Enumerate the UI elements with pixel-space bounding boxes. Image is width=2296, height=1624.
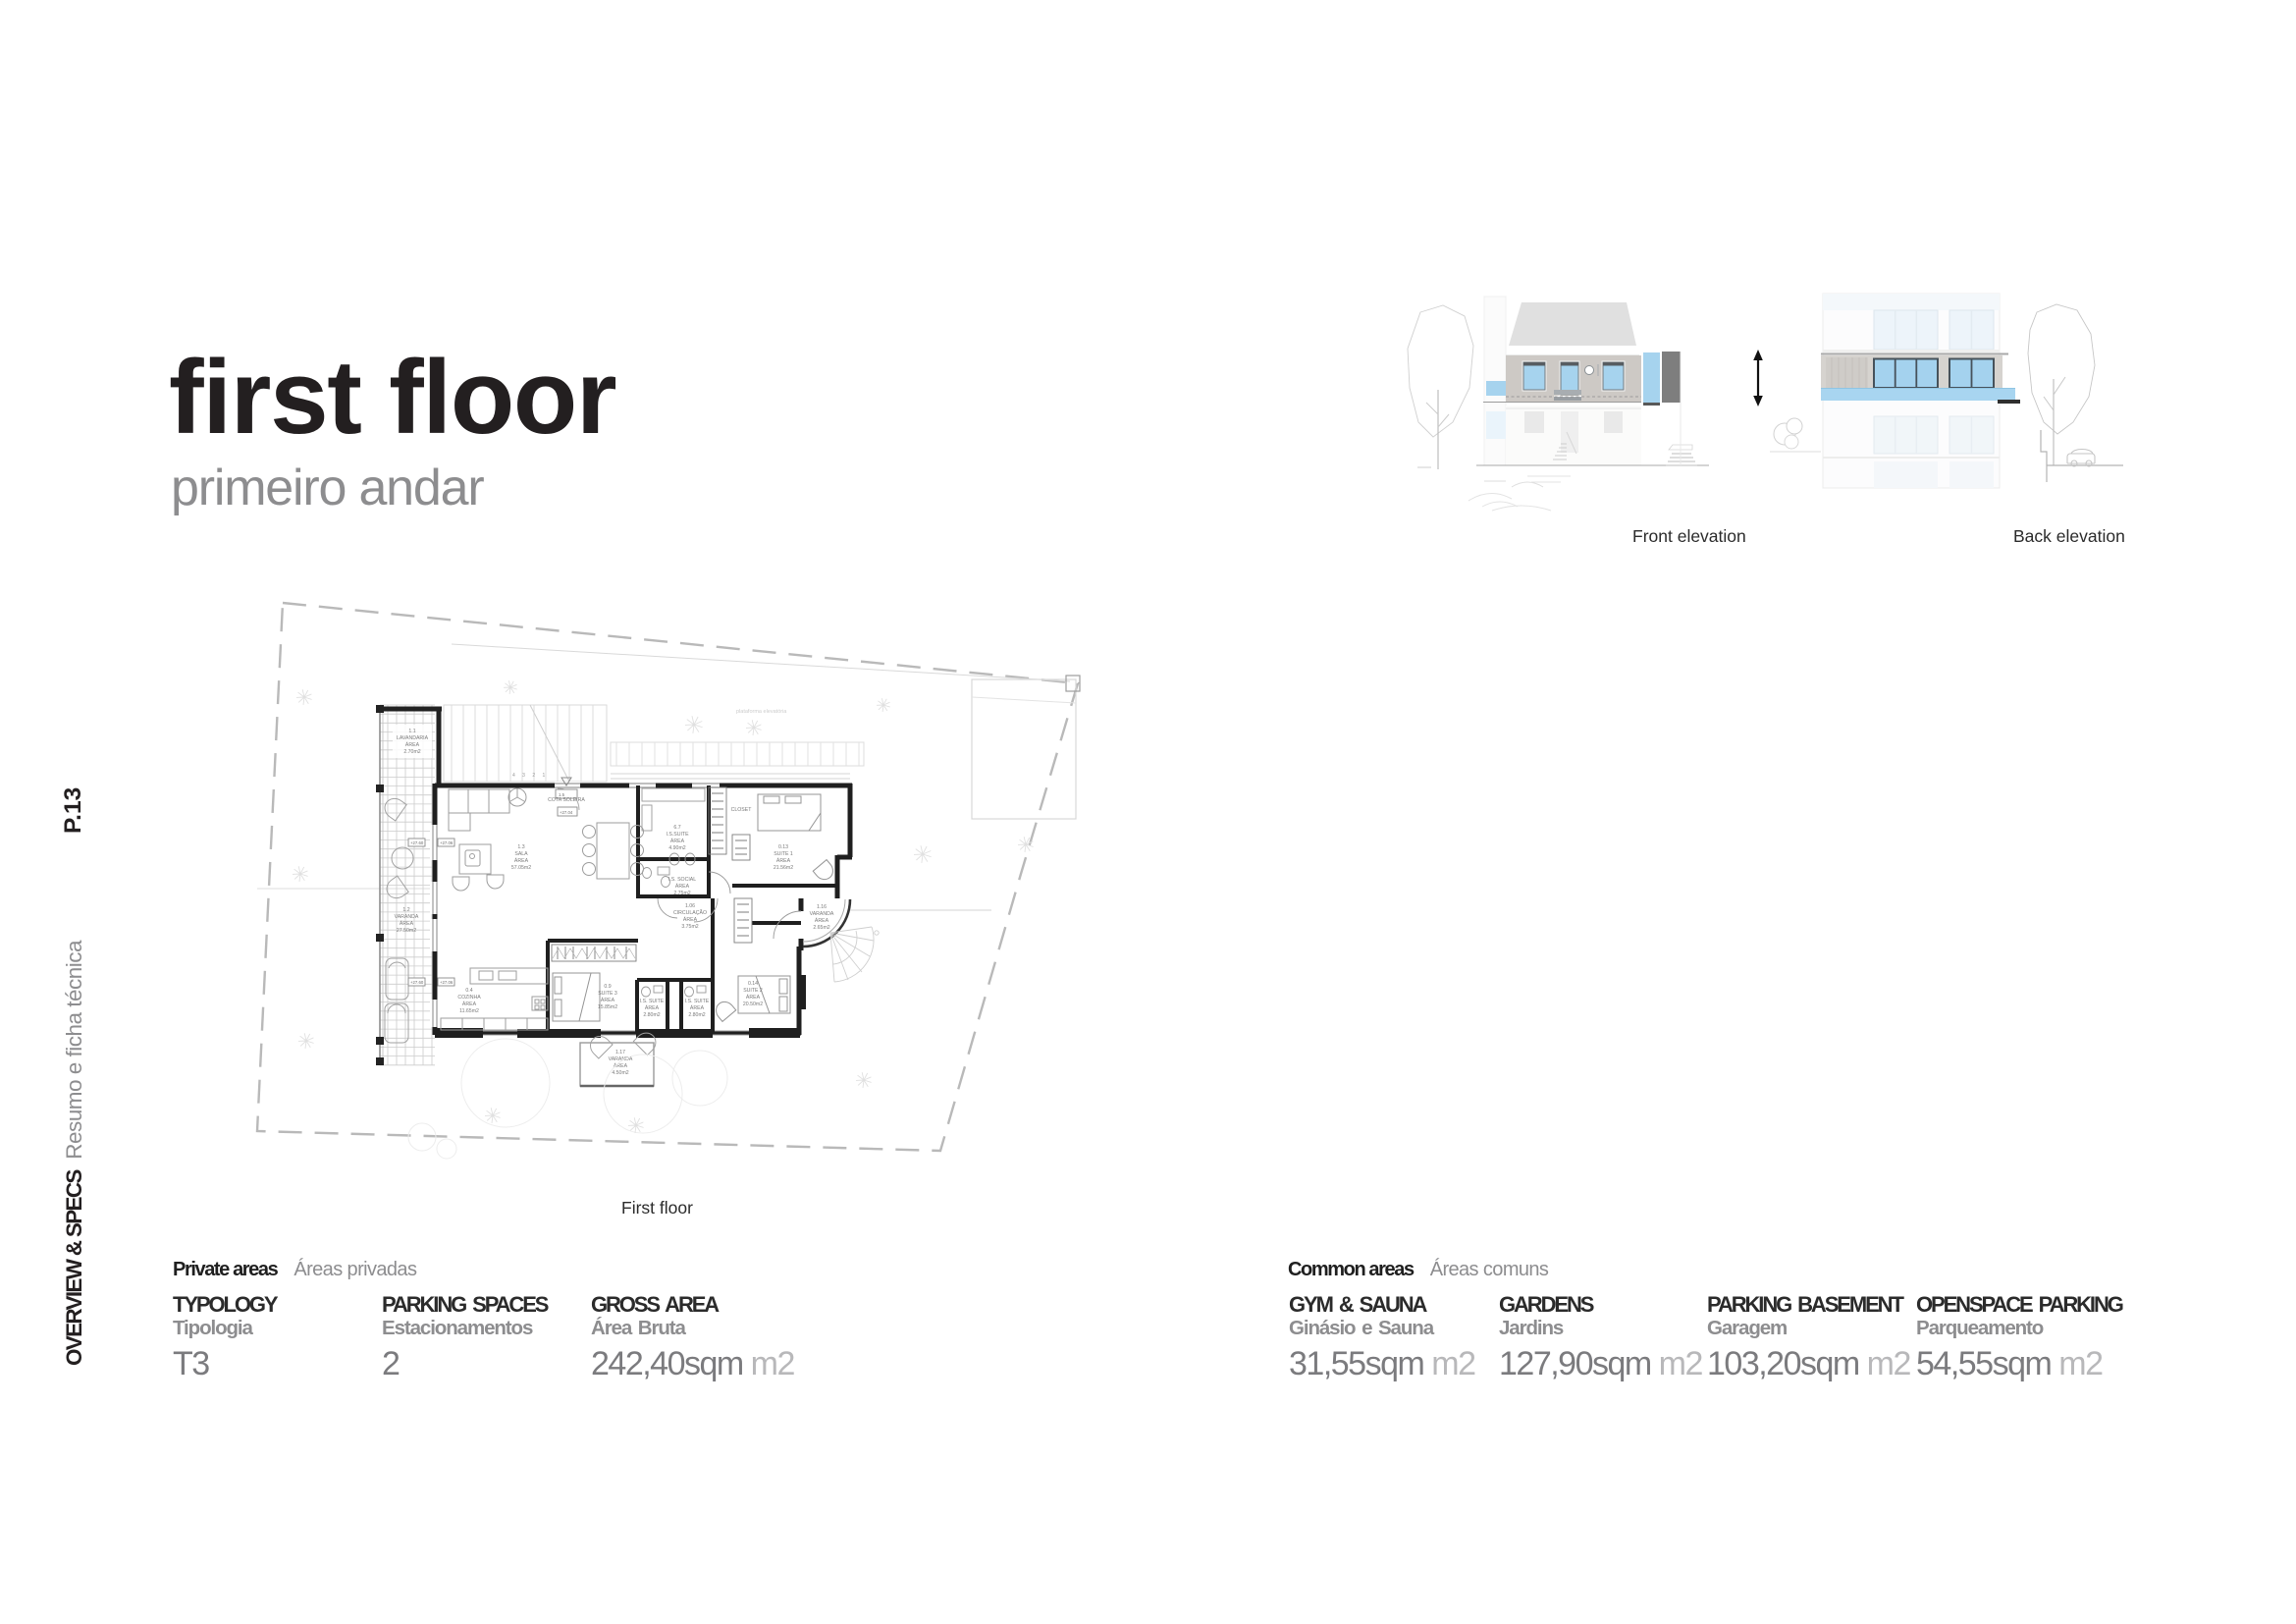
svg-text:ÁREA: ÁREA — [683, 916, 698, 923]
svg-text:SUITE 1: SUITE 1 — [774, 851, 793, 857]
svg-text:3.75m2: 3.75m2 — [681, 924, 698, 930]
svg-text:ÁREA: ÁREA — [690, 1004, 705, 1011]
svg-text:21.56m2: 21.56m2 — [774, 865, 793, 871]
svg-text:1.16: 1.16 — [817, 904, 827, 910]
svg-text:1.06: 1.06 — [685, 903, 695, 909]
svg-text:2.70m2: 2.70m2 — [403, 749, 420, 755]
svg-text:4.50m2: 4.50m2 — [612, 1070, 628, 1076]
svg-text:+27.06: +27.06 — [440, 980, 454, 985]
svg-text:I.S.SUITE: I.S.SUITE — [666, 832, 689, 838]
svg-text:ÁREA: ÁREA — [405, 741, 420, 748]
svg-text:27.50m2: 27.50m2 — [397, 928, 416, 934]
svg-text:SUITE 3: SUITE 3 — [598, 991, 617, 997]
svg-text:0.4: 0.4 — [465, 988, 472, 994]
svg-text:COZINHA: COZINHA — [457, 995, 481, 1001]
svg-text:ÁREA: ÁREA — [645, 1004, 660, 1011]
svg-text:VARANDA: VARANDA — [810, 911, 834, 917]
svg-text:ÁREA: ÁREA — [675, 883, 690, 890]
svg-text:ÁREA: ÁREA — [776, 857, 791, 864]
svg-text:4 3 2 1: 4 3 2 1 — [512, 773, 548, 779]
svg-text:11.65m2: 11.65m2 — [459, 1008, 479, 1014]
svg-text:+27.04: +27.04 — [560, 810, 573, 815]
svg-text:LAVANDARIA: LAVANDARIA — [397, 735, 429, 741]
svg-text:+27.06: +27.06 — [440, 840, 454, 845]
svg-text:CIRCULAÇÃO: CIRCULAÇÃO — [673, 909, 707, 916]
svg-text:1.17: 1.17 — [615, 1050, 625, 1056]
svg-text:1.1: 1.1 — [408, 729, 415, 734]
svg-text:4.90m2: 4.90m2 — [668, 845, 685, 851]
svg-text:VARANDA: VARANDA — [395, 914, 419, 920]
svg-text:ÁREA: ÁREA — [462, 1001, 477, 1007]
svg-text:I.S. SOCIAL: I.S. SOCIAL — [668, 877, 696, 883]
svg-text:15.85m2: 15.85m2 — [598, 1004, 617, 1010]
svg-text:1.2: 1.2 — [402, 907, 409, 913]
svg-text:2.65m2: 2.65m2 — [813, 925, 829, 931]
svg-text:0.14: 0.14 — [748, 981, 758, 987]
svg-text:20.50m2: 20.50m2 — [743, 1001, 763, 1007]
svg-text:2.75m2: 2.75m2 — [673, 891, 690, 896]
svg-text:plataforma elevatória: plataforma elevatória — [736, 709, 787, 715]
svg-text:CLOSET: CLOSET — [731, 807, 753, 813]
svg-text:ÁREA: ÁREA — [746, 994, 761, 1001]
svg-text:COTA SOLEIRA: COTA SOLEIRA — [548, 797, 585, 803]
svg-text:ÁREA: ÁREA — [670, 838, 685, 844]
svg-text:2.80m2: 2.80m2 — [643, 1012, 660, 1018]
svg-text:6.7: 6.7 — [673, 825, 680, 831]
svg-text:ÁREA: ÁREA — [601, 997, 615, 1003]
svg-text:1.3: 1.3 — [517, 844, 524, 850]
svg-text:+27.60: +27.60 — [410, 840, 424, 845]
svg-text:SUITE 2: SUITE 2 — [743, 988, 763, 994]
svg-text:SALA: SALA — [514, 851, 528, 857]
svg-text:ÁREA: ÁREA — [815, 917, 829, 924]
svg-text:57.05m2: 57.05m2 — [511, 865, 531, 871]
svg-text:I.S. SUITE: I.S. SUITE — [640, 999, 665, 1004]
svg-text:2.80m2: 2.80m2 — [688, 1012, 705, 1018]
svg-text:ÁREA: ÁREA — [400, 920, 414, 927]
svg-text:+27.60: +27.60 — [410, 980, 424, 985]
svg-text:0.9: 0.9 — [604, 984, 611, 990]
svg-text:ÁREA: ÁREA — [514, 857, 529, 864]
svg-text:I.S. SUITE: I.S. SUITE — [685, 999, 710, 1004]
svg-text:0.13: 0.13 — [778, 844, 788, 850]
